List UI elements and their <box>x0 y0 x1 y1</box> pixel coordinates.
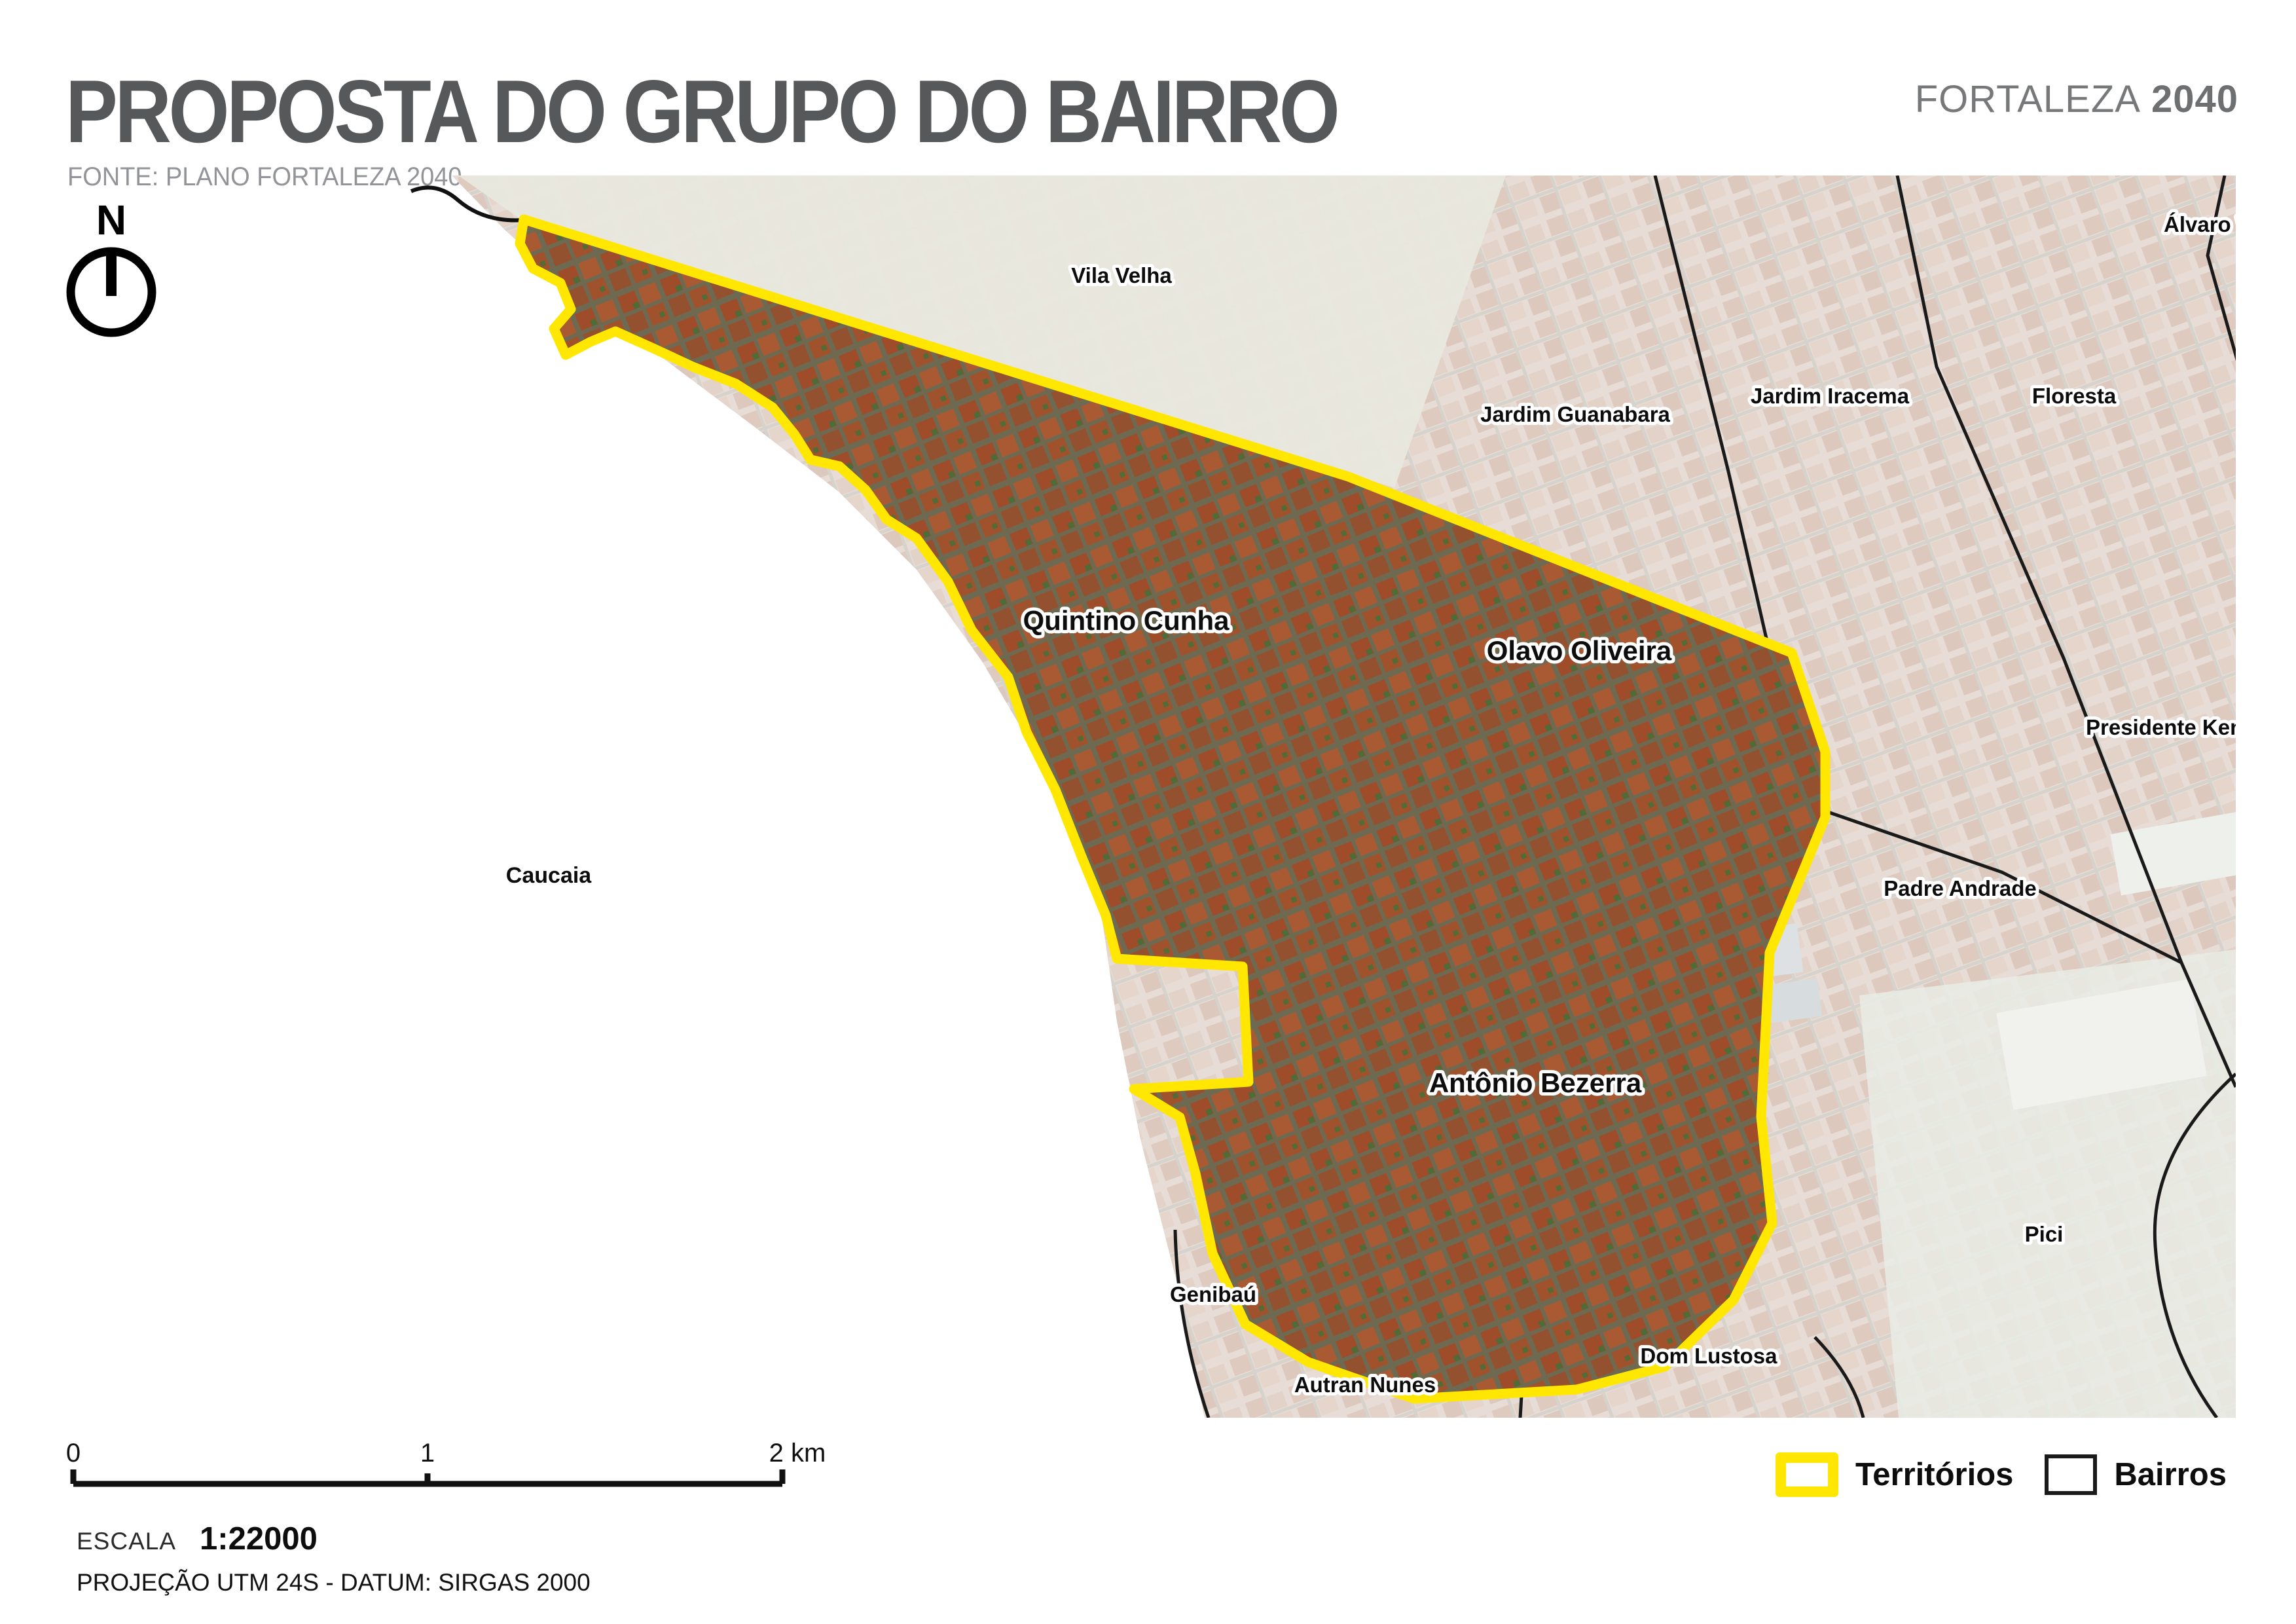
map-label-autran-nunes: Autran Nunes <box>1294 1373 1436 1397</box>
legend-item-territorios: Territórios <box>1776 1452 2013 1497</box>
north-needle-icon <box>106 251 117 296</box>
map-label-jardim-iracema: Jardim Iracema <box>1751 384 1910 408</box>
map-label-dom-lustosa: Dom Lustosa <box>1640 1344 1777 1368</box>
scale-bar-line <box>73 1469 782 1484</box>
scale-tick-2: 2 km <box>769 1439 826 1467</box>
legend-label: Territórios <box>1855 1456 2013 1493</box>
map-label-vila-velha: Vila Velha <box>1071 263 1172 287</box>
scale-tick-0: 0 <box>66 1439 81 1467</box>
legend: Territórios Bairros <box>1776 1452 2227 1497</box>
scale-value: 1:22000 <box>200 1521 318 1557</box>
scale-label: ESCALA <box>77 1528 176 1555</box>
legend-item-bairros: Bairros <box>2045 1454 2227 1495</box>
scale-tick-1: 1 <box>420 1439 435 1467</box>
map-label-floresta: Floresta <box>2032 384 2117 408</box>
bairro-swatch-icon <box>2045 1454 2097 1495</box>
map-label-alvaro-weyne: Álvaro W <box>2164 212 2258 236</box>
map-label-antonio-bezerra: Antônio Bezerra <box>1429 1067 1642 1098</box>
north-letter: N <box>96 196 126 244</box>
map-label-quintino-cunha: Quintino Cunha <box>1023 605 1230 636</box>
poster-page: PROPOSTA DO GRUPO DO BAIRRO FONTE: PLANO… <box>0 0 2296 1624</box>
map-label-olavo-oliveira: Olavo Oliveira <box>1487 635 1672 666</box>
map-label-padre-andrade: Padre Andrade <box>1884 876 2037 900</box>
map-label-genibau: Genibaú <box>1170 1282 1256 1306</box>
territory-swatch-icon <box>1776 1452 1838 1497</box>
map-label-jardim-guanabara: Jardim Guanabara <box>1480 402 1670 426</box>
map-label-caucaia: Caucaia <box>506 863 592 888</box>
map-canvas: Quintino CunhaOlavo OliveiraAntônio Beze… <box>0 0 2296 1624</box>
projection-note: PROJEÇÃO UTM 24S - DATUM: SIRGAS 2000 <box>77 1569 591 1596</box>
scale-bar: 0 1 2 km <box>66 1439 826 1484</box>
map-label-pici: Pici <box>2025 1222 2064 1246</box>
map-label-presidente-kennedy: Presidente Kenn <box>2086 715 2256 739</box>
legend-label: Bairros <box>2114 1456 2227 1493</box>
scale-row: ESCALA1:22000 <box>77 1521 318 1557</box>
north-indicator: N <box>71 196 152 333</box>
